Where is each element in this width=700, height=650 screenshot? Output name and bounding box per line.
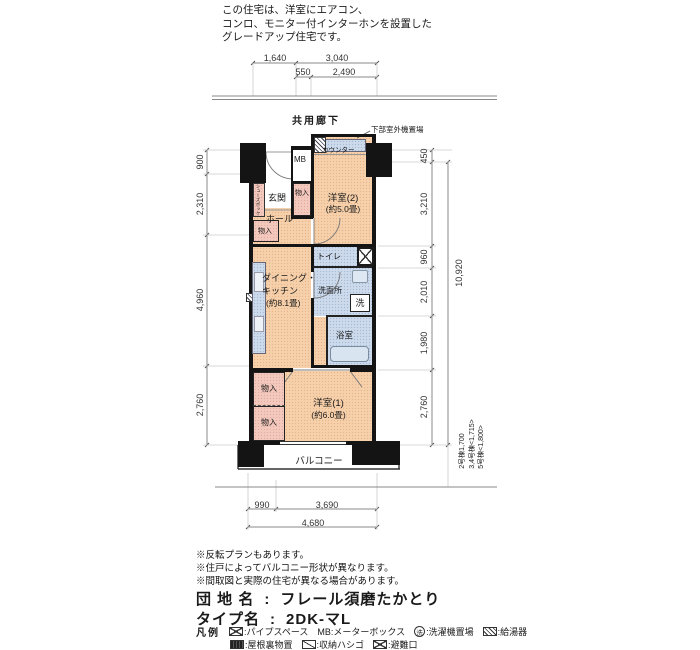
legend-item-meter-box: MB:メーターボックス — [317, 625, 405, 638]
header-description: この住宅は、洋室にエアコン、 コンロ、モニター付インターホンを設置した グレード… — [222, 4, 432, 45]
dim-right-2760: 2,760 — [419, 396, 429, 419]
dim-top-2490: 2,490 — [333, 67, 356, 77]
pillar-bottom-right — [352, 441, 400, 465]
closet-w1b-label: 物入 — [253, 417, 285, 428]
right-dimension-ticks — [430, 148, 450, 447]
outdoor-unit-label: 下部室外機置場 — [371, 124, 424, 135]
note-1: ※反転プランもあります。 — [196, 547, 309, 561]
shoes-box: シューズボックス — [253, 183, 265, 217]
floor-plan-page: この住宅は、洋室にエアコン、 コンロ、モニター付インターホンを設置した グレード… — [0, 0, 700, 650]
attic-storage-icon — [230, 640, 244, 649]
legend-item-ladder: :収納ハシゴ — [302, 638, 365, 650]
closet-w1a-label: 物入 — [253, 383, 285, 394]
dim-bottom-990: 990 — [254, 500, 269, 510]
pipe-space-icon — [357, 247, 374, 266]
wall-middle — [249, 244, 372, 247]
dk-label-1: ダイニング・ — [262, 271, 316, 284]
note-2: ※住戸によってバルコニー形状が異なります。 — [196, 560, 394, 574]
legend-water-heater-label: :給湯器 — [498, 625, 528, 638]
right-dimension-lines — [432, 150, 448, 445]
wall-western1-top-right — [350, 368, 376, 372]
left-extension-lines — [203, 150, 251, 445]
building-depth-3: 5号棟<1,800> — [477, 419, 487, 468]
legend-item-attic: :屋根裏物置 — [230, 638, 293, 650]
legend-row-2: :屋根裏物置 :収納ハシゴ :避難口 — [230, 638, 418, 650]
note-3: ※間取図と実際の住宅が異なる場合があります。 — [196, 573, 404, 587]
dim-right-960: 960 — [419, 249, 429, 264]
legend-item-exit: :避難口 — [373, 638, 418, 650]
legend-meter-box-label: MB:メーターボックス — [317, 625, 405, 638]
balcony-label: バルコニー — [280, 453, 358, 467]
header-line-3: グレードアップ住宅です。 — [222, 31, 432, 45]
building-depth-2: 3,4号棟<1,715> — [467, 419, 477, 468]
corridor-lines — [212, 96, 497, 100]
left-dimension-ticks — [205, 148, 209, 447]
top-extension-lines — [253, 63, 377, 96]
western2-size-label: (約5.0畳) — [314, 203, 372, 215]
dim-left-2310: 2,310 — [195, 193, 205, 216]
dim-right-450: 450 — [419, 148, 429, 163]
washbasin-icon — [352, 270, 368, 283]
room-meter-box — [291, 148, 311, 181]
wall-bath-top — [326, 315, 372, 317]
estate-name-row: 団 地 名 : フレール須磨たかとり — [196, 588, 440, 609]
genkan-label: 玄関 — [268, 191, 286, 204]
bathtub-icon — [330, 346, 369, 362]
dim-left-2760: 2,760 — [195, 394, 205, 417]
bath-label: 浴室 — [336, 329, 353, 341]
wall-toilet-bottom — [313, 266, 372, 268]
legend-pipe-space-label: :パイプスペース — [244, 625, 308, 638]
dim-bottom-4680: 4,680 — [302, 518, 325, 528]
dk-label-2: キッチン — [262, 284, 298, 297]
dim-bottom-3690: 3,690 — [316, 500, 339, 510]
wall-top-mb — [291, 146, 313, 150]
wall-closet-top-bottom — [291, 216, 313, 219]
kitchen-stove-icon — [254, 316, 264, 332]
washroom-label: 洗面所 — [318, 285, 342, 296]
dim-right-1980: 1,980 — [419, 332, 429, 355]
building-depth-notes: 2号棟1,700 3,4号棟<1,715> 5号棟<1,800> — [458, 419, 487, 468]
top-dimension-ticks — [251, 61, 379, 79]
closet-top — [293, 183, 311, 216]
closet-hall-label: 物入 — [258, 226, 272, 236]
dim-right-3210: 3,210 — [419, 193, 429, 216]
legend-laundry-label: :洗濯機置場 — [426, 625, 474, 638]
estate-name-colon: : — [264, 591, 270, 608]
wall-bath-left — [326, 315, 328, 367]
pillar-top-left — [240, 143, 266, 183]
legend-ladder-label: :収納ハシゴ — [317, 638, 365, 650]
right-extension-lines — [378, 150, 452, 487]
dim-left-4960: 4,960 — [195, 289, 205, 312]
hall-label: ホール — [266, 212, 293, 225]
legend-row-1: 凡例 :パイプスペース MB:メーターボックス 洗 :洗濯機置場 :給湯器 — [196, 624, 527, 639]
closet-top-label: 物入 — [295, 190, 309, 198]
legend-item-water-heater: :給湯器 — [483, 625, 528, 638]
dim-top-1640: 1,640 — [264, 53, 287, 63]
building-depth-1: 2号棟1,700 — [458, 419, 468, 468]
dim-top-550: 550 — [295, 67, 310, 77]
top-dimension-lines — [253, 63, 377, 77]
pillar-bottom-left — [238, 441, 264, 467]
wall-right — [372, 134, 376, 445]
pipe-space-icon — [229, 627, 243, 636]
storage-ladder-icon — [302, 640, 316, 649]
header-line-1: この住宅は、洋室にエアコン、 — [222, 4, 432, 18]
mb-label: MB — [294, 155, 306, 164]
legend-title: 凡例 — [196, 624, 220, 639]
legend-attic-label: :屋根裏物置 — [245, 638, 293, 650]
western1-label: 洋室(1) — [285, 395, 372, 409]
laundry-place-label: 洗 — [350, 294, 370, 312]
emergency-exit-icon — [373, 640, 387, 649]
western2-label: 洋室(2) — [314, 190, 372, 204]
legend-item-laundry: 洗 :洗濯機置場 — [414, 625, 474, 638]
estate-name-value: フレール須磨たかとり — [280, 588, 440, 609]
wall-partition-c — [311, 298, 314, 368]
legend-item-pipe-space: :パイプスペース — [229, 625, 308, 638]
legend-exit-label: :避難口 — [388, 638, 418, 650]
header-line-2: コンロ、モニター付インターホンを設置した — [222, 18, 432, 32]
western1-size-label: (約6.0畳) — [285, 409, 372, 421]
dim-right-total-10920: 10,920 — [454, 259, 464, 287]
counter-label: カウンター — [322, 144, 355, 154]
corridor-label: 共用廊下 — [292, 112, 340, 127]
dim-top-3040: 3,040 — [326, 53, 349, 63]
toilet-label: トイレ — [317, 251, 341, 262]
dim-left-900: 900 — [195, 154, 205, 169]
water-heater-icon — [483, 627, 497, 636]
dim-right-2010: 2,010 — [419, 281, 429, 304]
pillar-top-right — [366, 143, 392, 177]
dk-size-label: (約8.1畳) — [266, 297, 300, 309]
estate-name-label: 団 地 名 — [196, 588, 254, 609]
window-western1 — [280, 441, 346, 445]
laundry-place-icon: 洗 — [414, 626, 425, 637]
